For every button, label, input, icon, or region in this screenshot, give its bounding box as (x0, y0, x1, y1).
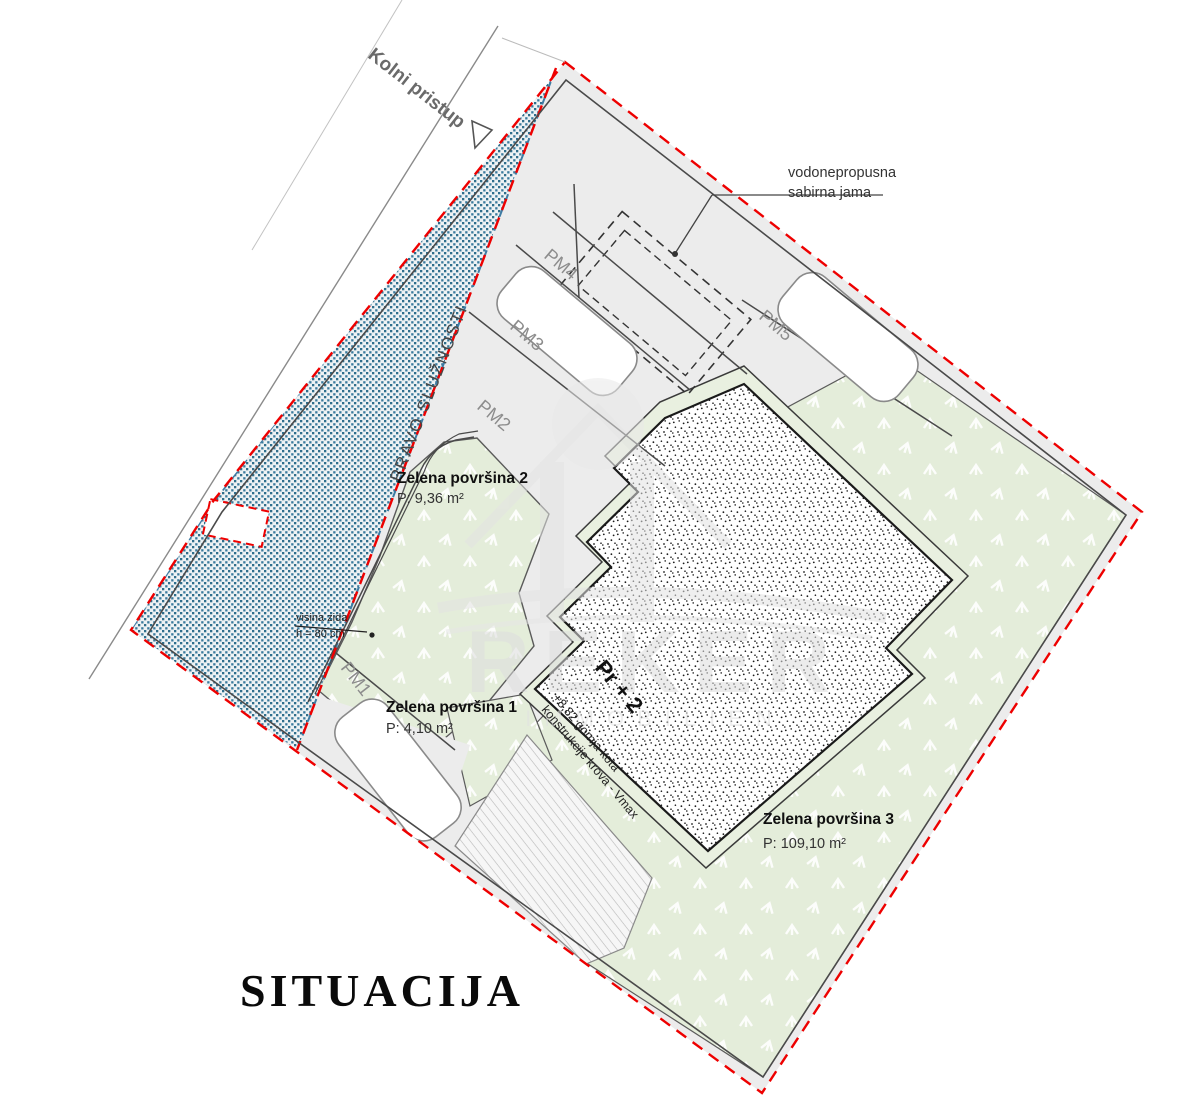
pit-label-line2: sabirna jama (788, 185, 872, 201)
site-plan-drawing: REKER IMMOBILIEN Kolni pristup PRAVO SLU… (0, 0, 1200, 1097)
site-plan-page: REKER IMMOBILIEN Kolni pristup PRAVO SLU… (0, 0, 1200, 1097)
green-area-3-name: Zelena površina 3 (763, 811, 894, 828)
green-area-2-size: P: 9,36 m² (397, 491, 464, 507)
green-area-3-size: P: 109,10 m² (763, 836, 846, 852)
green-area-1-name: Zelena površina 1 (386, 699, 517, 716)
watermark-text-main: REKER (466, 612, 844, 711)
drawing-title: SITUACIJA (240, 965, 524, 1016)
pit-label-line1: vodonepropusna (788, 165, 897, 181)
wall-note-line1: visina zida (296, 612, 348, 624)
wall-note-line2: h = 80 cm (296, 628, 345, 640)
watermark-bar (630, 462, 654, 622)
green-area-1-size: P: 4,10 m² (386, 721, 453, 737)
green-area-2-name: Zelena površina 2 (397, 470, 528, 487)
watermark-circle (552, 378, 644, 470)
